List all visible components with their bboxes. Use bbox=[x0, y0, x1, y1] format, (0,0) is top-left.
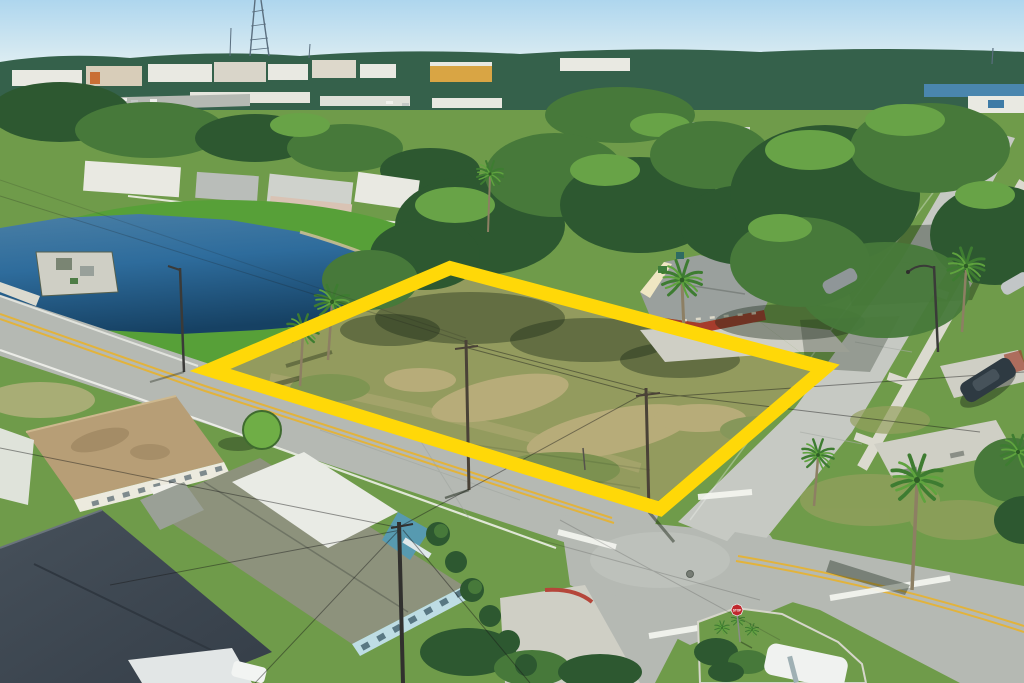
commercial-strip bbox=[320, 96, 410, 106]
tree-highlight bbox=[865, 104, 945, 136]
sand-patch bbox=[384, 368, 456, 392]
trimmed-tree bbox=[243, 411, 281, 449]
distant-car bbox=[386, 101, 393, 104]
apartment-block bbox=[214, 62, 266, 82]
dry-grass-patch bbox=[850, 406, 930, 434]
apartment-block bbox=[148, 64, 212, 82]
trimmed-bush bbox=[445, 551, 467, 573]
building bbox=[268, 64, 308, 80]
streetlight-head bbox=[906, 270, 910, 274]
manhole-cover bbox=[687, 571, 694, 578]
tree-highlight bbox=[748, 214, 812, 242]
tree-highlight bbox=[270, 113, 330, 137]
trimmed-bush-highlight bbox=[468, 580, 482, 594]
tree-highlight bbox=[415, 187, 495, 223]
island-bush bbox=[708, 662, 744, 682]
distant-teal-accent bbox=[988, 100, 1004, 108]
pump-equipment bbox=[56, 258, 72, 270]
distant-car bbox=[150, 99, 157, 102]
tree-highlight bbox=[570, 154, 640, 186]
house-roof bbox=[195, 172, 259, 202]
pump-equipment bbox=[80, 266, 94, 276]
yellow-apartment-roof bbox=[430, 62, 492, 66]
stop-sign-label: STOP bbox=[733, 609, 742, 613]
trimmed-bush bbox=[479, 605, 501, 627]
commercial-strip bbox=[432, 98, 502, 108]
pump-station-pad bbox=[36, 252, 118, 296]
tree-highlight bbox=[955, 181, 1015, 209]
pump-equipment bbox=[70, 278, 78, 284]
aerial-photo: STOP bbox=[0, 0, 1024, 683]
apartment-accent bbox=[90, 72, 100, 84]
building bbox=[312, 60, 356, 78]
distant-car bbox=[402, 103, 409, 106]
far-left-house bbox=[0, 428, 34, 505]
aerial-photo-canvas: STOP bbox=[0, 0, 1024, 683]
warehouse bbox=[560, 58, 630, 71]
house-wall bbox=[0, 428, 34, 505]
tree-highlight bbox=[765, 130, 855, 170]
roof-stain bbox=[130, 444, 170, 460]
trimmed-bush-highlight bbox=[434, 524, 448, 538]
building bbox=[360, 64, 396, 78]
intersection-wear bbox=[590, 532, 730, 588]
yellow-apartment bbox=[430, 64, 492, 82]
trimmed-bush bbox=[496, 630, 520, 654]
trimmed-bush bbox=[515, 654, 537, 676]
distant-water bbox=[924, 84, 1024, 97]
trash-bin-teal bbox=[676, 252, 684, 259]
tree-shadow-on-lot bbox=[340, 314, 440, 346]
